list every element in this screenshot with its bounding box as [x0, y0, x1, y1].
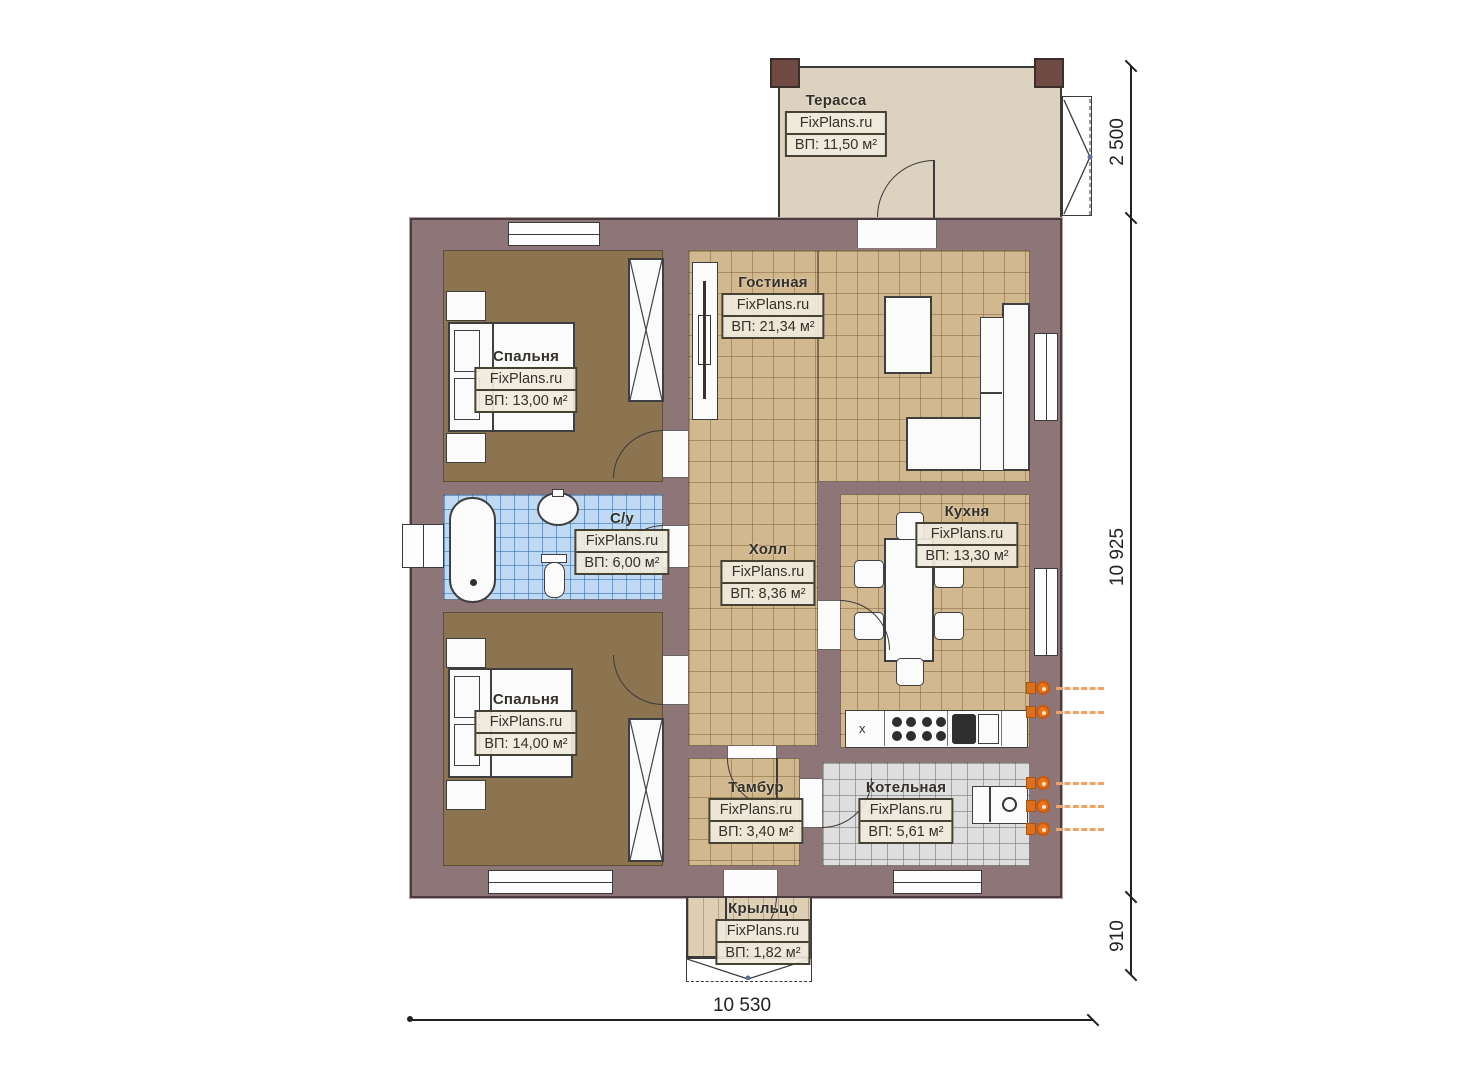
room-label-bedroom1: Спальня FixPlans.ru ВП: 13,00 м² [474, 348, 577, 413]
bedroom1-door-opening [663, 430, 688, 478]
pipe-bracket [1026, 823, 1036, 835]
stove-burner [922, 731, 932, 741]
brand-label: FixPlans.ru [860, 800, 951, 820]
kitchen-sink-drainer [952, 714, 976, 744]
room-area: ВП: 1,82 м² [717, 941, 808, 963]
wardrobe-cross [630, 720, 662, 860]
pipe-bracket [1026, 706, 1036, 718]
brand-label: FixPlans.ru [710, 800, 801, 820]
chair [896, 658, 924, 686]
sofa-cushion-line [981, 392, 1002, 394]
pipe-connector [1036, 822, 1050, 836]
wardrobe [628, 258, 664, 402]
room-area: ВП: 8,36 м² [722, 582, 813, 604]
stove-burner [936, 717, 946, 727]
counter-divider [884, 711, 885, 746]
brand-label: FixPlans.ru [787, 113, 885, 133]
room-area: ВП: 14,00 м² [476, 732, 575, 754]
stove-burner [892, 731, 902, 741]
window-kitchen-right [1034, 568, 1058, 656]
entrance-door-opening [723, 870, 778, 896]
nightstand [446, 638, 486, 668]
bathtub-drain [470, 579, 477, 586]
cabinet-x-marker: x [859, 721, 866, 736]
terrace-door-leaf [933, 160, 935, 218]
toilet-bowl [544, 562, 565, 598]
room-area: ВП: 13,00 м² [476, 389, 575, 411]
brand-label: FixPlans.ru [576, 531, 667, 551]
living-table [884, 296, 932, 374]
stove-burner [906, 731, 916, 741]
brand-label: FixPlans.ru [476, 369, 575, 389]
tv-stand [692, 262, 718, 420]
room-name: Крыльцо [715, 900, 810, 917]
room-label-tambour: Тамбур FixPlans.ru ВП: 3,40 м² [708, 779, 803, 844]
room-area: ВП: 3,40 м² [710, 820, 801, 842]
boiler-dial [1002, 797, 1017, 812]
window-bathroom-left [402, 524, 444, 568]
floor-plan: x Терасса FixPlans.ru ВП: 1 [0, 0, 1473, 1080]
brand-label: FixPlans.ru [723, 295, 822, 315]
tambour-door-opening [727, 746, 777, 758]
kitchen-door-opening [818, 600, 840, 650]
bathroom-sink-tap [552, 489, 564, 497]
chair [934, 612, 964, 640]
room-label-boiler: Котельная FixPlans.ru ВП: 5,61 м² [858, 779, 953, 844]
terrace-post-right [1034, 58, 1064, 88]
room-label-porch: Крыльцо FixPlans.ru ВП: 1,82 м² [715, 900, 810, 965]
sofa-seat [980, 317, 1004, 471]
brand-label: FixPlans.ru [722, 562, 813, 582]
brand-label: FixPlans.ru [717, 921, 808, 941]
terrace-post-left [770, 58, 800, 88]
boiler-unit [972, 786, 1028, 824]
pipe-connector [1036, 705, 1050, 719]
pipe-line [1056, 828, 1104, 831]
brand-label: FixPlans.ru [917, 524, 1016, 544]
wardrobe-cross [630, 260, 662, 400]
pipe-bracket [1026, 800, 1036, 812]
pipe-line [1056, 805, 1104, 808]
room-name: С/у [574, 510, 669, 527]
chair [854, 560, 884, 588]
stove-burner [906, 717, 916, 727]
dimension-end-dot [407, 1016, 413, 1022]
dimension-bottom: 10 530 [713, 995, 771, 1017]
room-area: ВП: 21,34 м² [723, 315, 822, 337]
dimension-right-bottom: 910 [1107, 920, 1129, 952]
kitchen-counter: x [845, 710, 1028, 748]
window-living-right [1034, 333, 1058, 421]
room-name: Спальня [474, 348, 577, 365]
window-bedroom2-bottom [488, 870, 613, 894]
stove-burner [936, 731, 946, 741]
pipe-connector [1036, 799, 1050, 813]
bathtub [449, 497, 496, 603]
stove-burner [922, 717, 932, 727]
terrace-stairs [1062, 96, 1092, 216]
room-name: Терасса [785, 92, 887, 109]
kitchen-sink-basin [978, 714, 999, 744]
pipe-connector [1036, 776, 1050, 790]
room-area: ВП: 6,00 м² [576, 551, 667, 573]
wardrobe [628, 718, 664, 862]
stove-burner [892, 717, 902, 727]
dimension-line-right [1130, 66, 1132, 975]
room-label-hall: Холл FixPlans.ru ВП: 8,36 м² [720, 541, 815, 606]
nightstand [446, 433, 486, 463]
boiler-divider [989, 787, 991, 822]
pipe-bracket [1026, 777, 1036, 789]
room-name: Котельная [858, 779, 953, 796]
counter-divider [1001, 711, 1002, 746]
counter-divider [947, 711, 948, 746]
room-label-living: Гостиная FixPlans.ru ВП: 21,34 м² [721, 274, 824, 339]
window-boiler-bottom [893, 870, 982, 894]
room-label-terrace: Терасса FixPlans.ru ВП: 11,50 м² [785, 92, 887, 157]
room-name: Спальня [474, 691, 577, 708]
room-area: ВП: 11,50 м² [787, 133, 885, 155]
sofa-back [1002, 303, 1030, 471]
pipe-connector [1036, 681, 1050, 695]
terrace-stairs-lines [1063, 97, 1093, 217]
window-bedroom1-top [508, 222, 600, 246]
pipe-line [1056, 711, 1104, 714]
bathroom-sink [537, 492, 579, 526]
dimension-line-bottom [410, 1019, 1093, 1021]
terrace-door-opening [857, 220, 937, 248]
room-label-kitchen: Кухня FixPlans.ru ВП: 13,30 м² [915, 503, 1018, 568]
pipe-bracket [1026, 682, 1036, 694]
room-label-bathroom: С/у FixPlans.ru ВП: 6,00 м² [574, 510, 669, 575]
room-area: ВП: 13,30 м² [917, 544, 1016, 566]
room-label-bedroom2: Спальня FixPlans.ru ВП: 14,00 м² [474, 691, 577, 756]
sofa-chaise [906, 417, 982, 471]
pipe-line [1056, 687, 1104, 690]
bedroom2-door-opening [663, 655, 688, 705]
dimension-right-top: 2 500 [1107, 118, 1129, 166]
room-name: Холл [720, 541, 815, 558]
room-name: Гостиная [721, 274, 824, 291]
pipe-line [1056, 782, 1104, 785]
room-name: Кухня [915, 503, 1018, 520]
tv-bracket [698, 315, 711, 365]
room-name: Тамбур [708, 779, 803, 796]
nightstand [446, 291, 486, 321]
nightstand [446, 780, 486, 810]
room-area: ВП: 5,61 м² [860, 820, 951, 842]
dimension-right-middle: 10 925 [1107, 528, 1129, 586]
brand-label: FixPlans.ru [476, 712, 575, 732]
